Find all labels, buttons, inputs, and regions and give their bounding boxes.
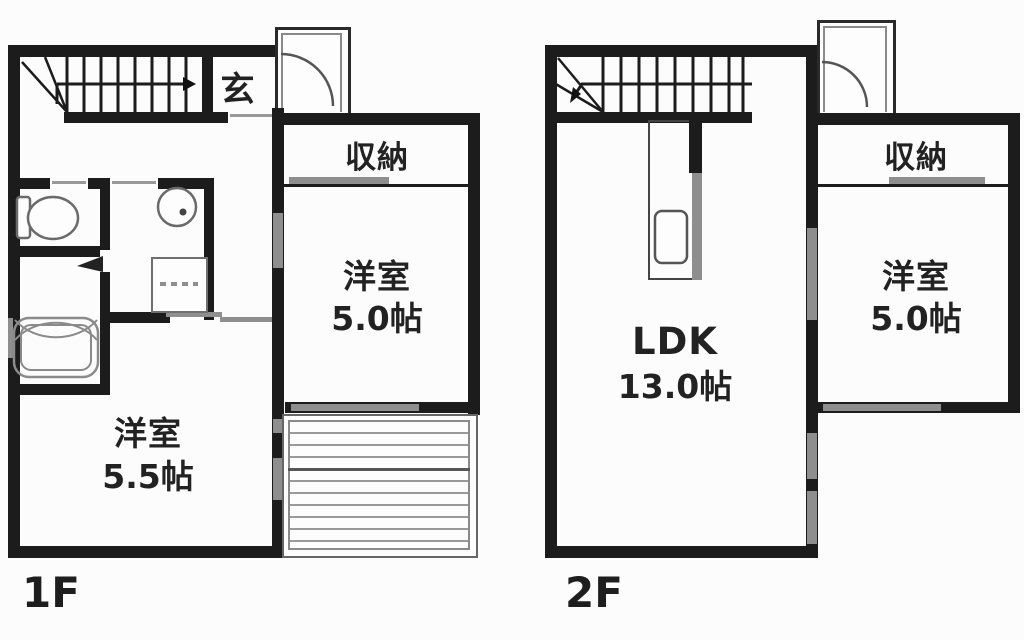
- wall: [812, 113, 1020, 125]
- room-label: 洋室: [882, 250, 950, 298]
- kitchen-counter-edge: [692, 173, 702, 280]
- staircase-down-icon: [549, 57, 752, 112]
- window: [807, 433, 817, 479]
- wall: [545, 45, 808, 57]
- door-leaf: [52, 181, 86, 184]
- window: [291, 404, 419, 411]
- stair-arrow-icon: [183, 77, 196, 91]
- wall: [8, 45, 278, 57]
- deck-stripes: [288, 420, 470, 550]
- floor-label-2f: 2F: [565, 568, 623, 617]
- genkan-step-line: [230, 114, 274, 117]
- ldk-size: 13.0帖: [618, 360, 732, 408]
- window: [8, 318, 13, 358]
- wall: [284, 184, 470, 187]
- washbasin-icon: [158, 188, 196, 226]
- wall: [689, 115, 702, 173]
- window: [807, 491, 817, 544]
- stair-arrow-icon: [570, 87, 581, 103]
- wall: [8, 45, 20, 558]
- wall: [468, 113, 480, 415]
- door-leaf: [112, 181, 156, 184]
- door-opening: [100, 250, 110, 272]
- staircase-up-icon: [22, 57, 186, 112]
- closet-label: 収納: [884, 132, 948, 177]
- room-size: 5.5帖: [102, 450, 193, 498]
- wall: [8, 246, 110, 257]
- deck-mid-rail: [288, 468, 470, 471]
- floor-plan: 玄 収納 洋室 5.0帖 洋室 5.5帖 1F: [0, 0, 1024, 640]
- window: [823, 404, 941, 411]
- closet-label: 収納: [345, 132, 409, 177]
- room-label: 洋室: [114, 407, 182, 455]
- bathtub-icon: [14, 318, 98, 377]
- sliding-door: [220, 317, 272, 322]
- wall: [8, 546, 285, 558]
- room-label: 洋室: [343, 250, 411, 298]
- wall: [110, 312, 170, 323]
- wall: [100, 178, 110, 395]
- entrance-door-frame: [281, 33, 342, 112]
- wall: [278, 113, 480, 125]
- genkan-label: 玄: [221, 62, 256, 111]
- floor-label-1f: 1F: [22, 568, 80, 617]
- wall: [1008, 113, 1020, 413]
- sliding-door: [807, 228, 817, 320]
- toilet-icon: [17, 197, 78, 239]
- room-size: 5.0帖: [870, 292, 961, 340]
- wall: [545, 546, 818, 558]
- sliding-door: [889, 177, 985, 184]
- balcony-door-frame: [823, 26, 887, 112]
- sliding-door: [289, 177, 389, 184]
- wall: [64, 112, 228, 123]
- sliding-door: [273, 213, 283, 268]
- wall: [8, 384, 110, 395]
- washing-machine-dashes: [160, 282, 198, 286]
- wall: [818, 184, 1008, 187]
- ldk-label: LDK: [632, 320, 718, 363]
- room-size: 5.0帖: [331, 292, 422, 340]
- wall: [202, 57, 213, 112]
